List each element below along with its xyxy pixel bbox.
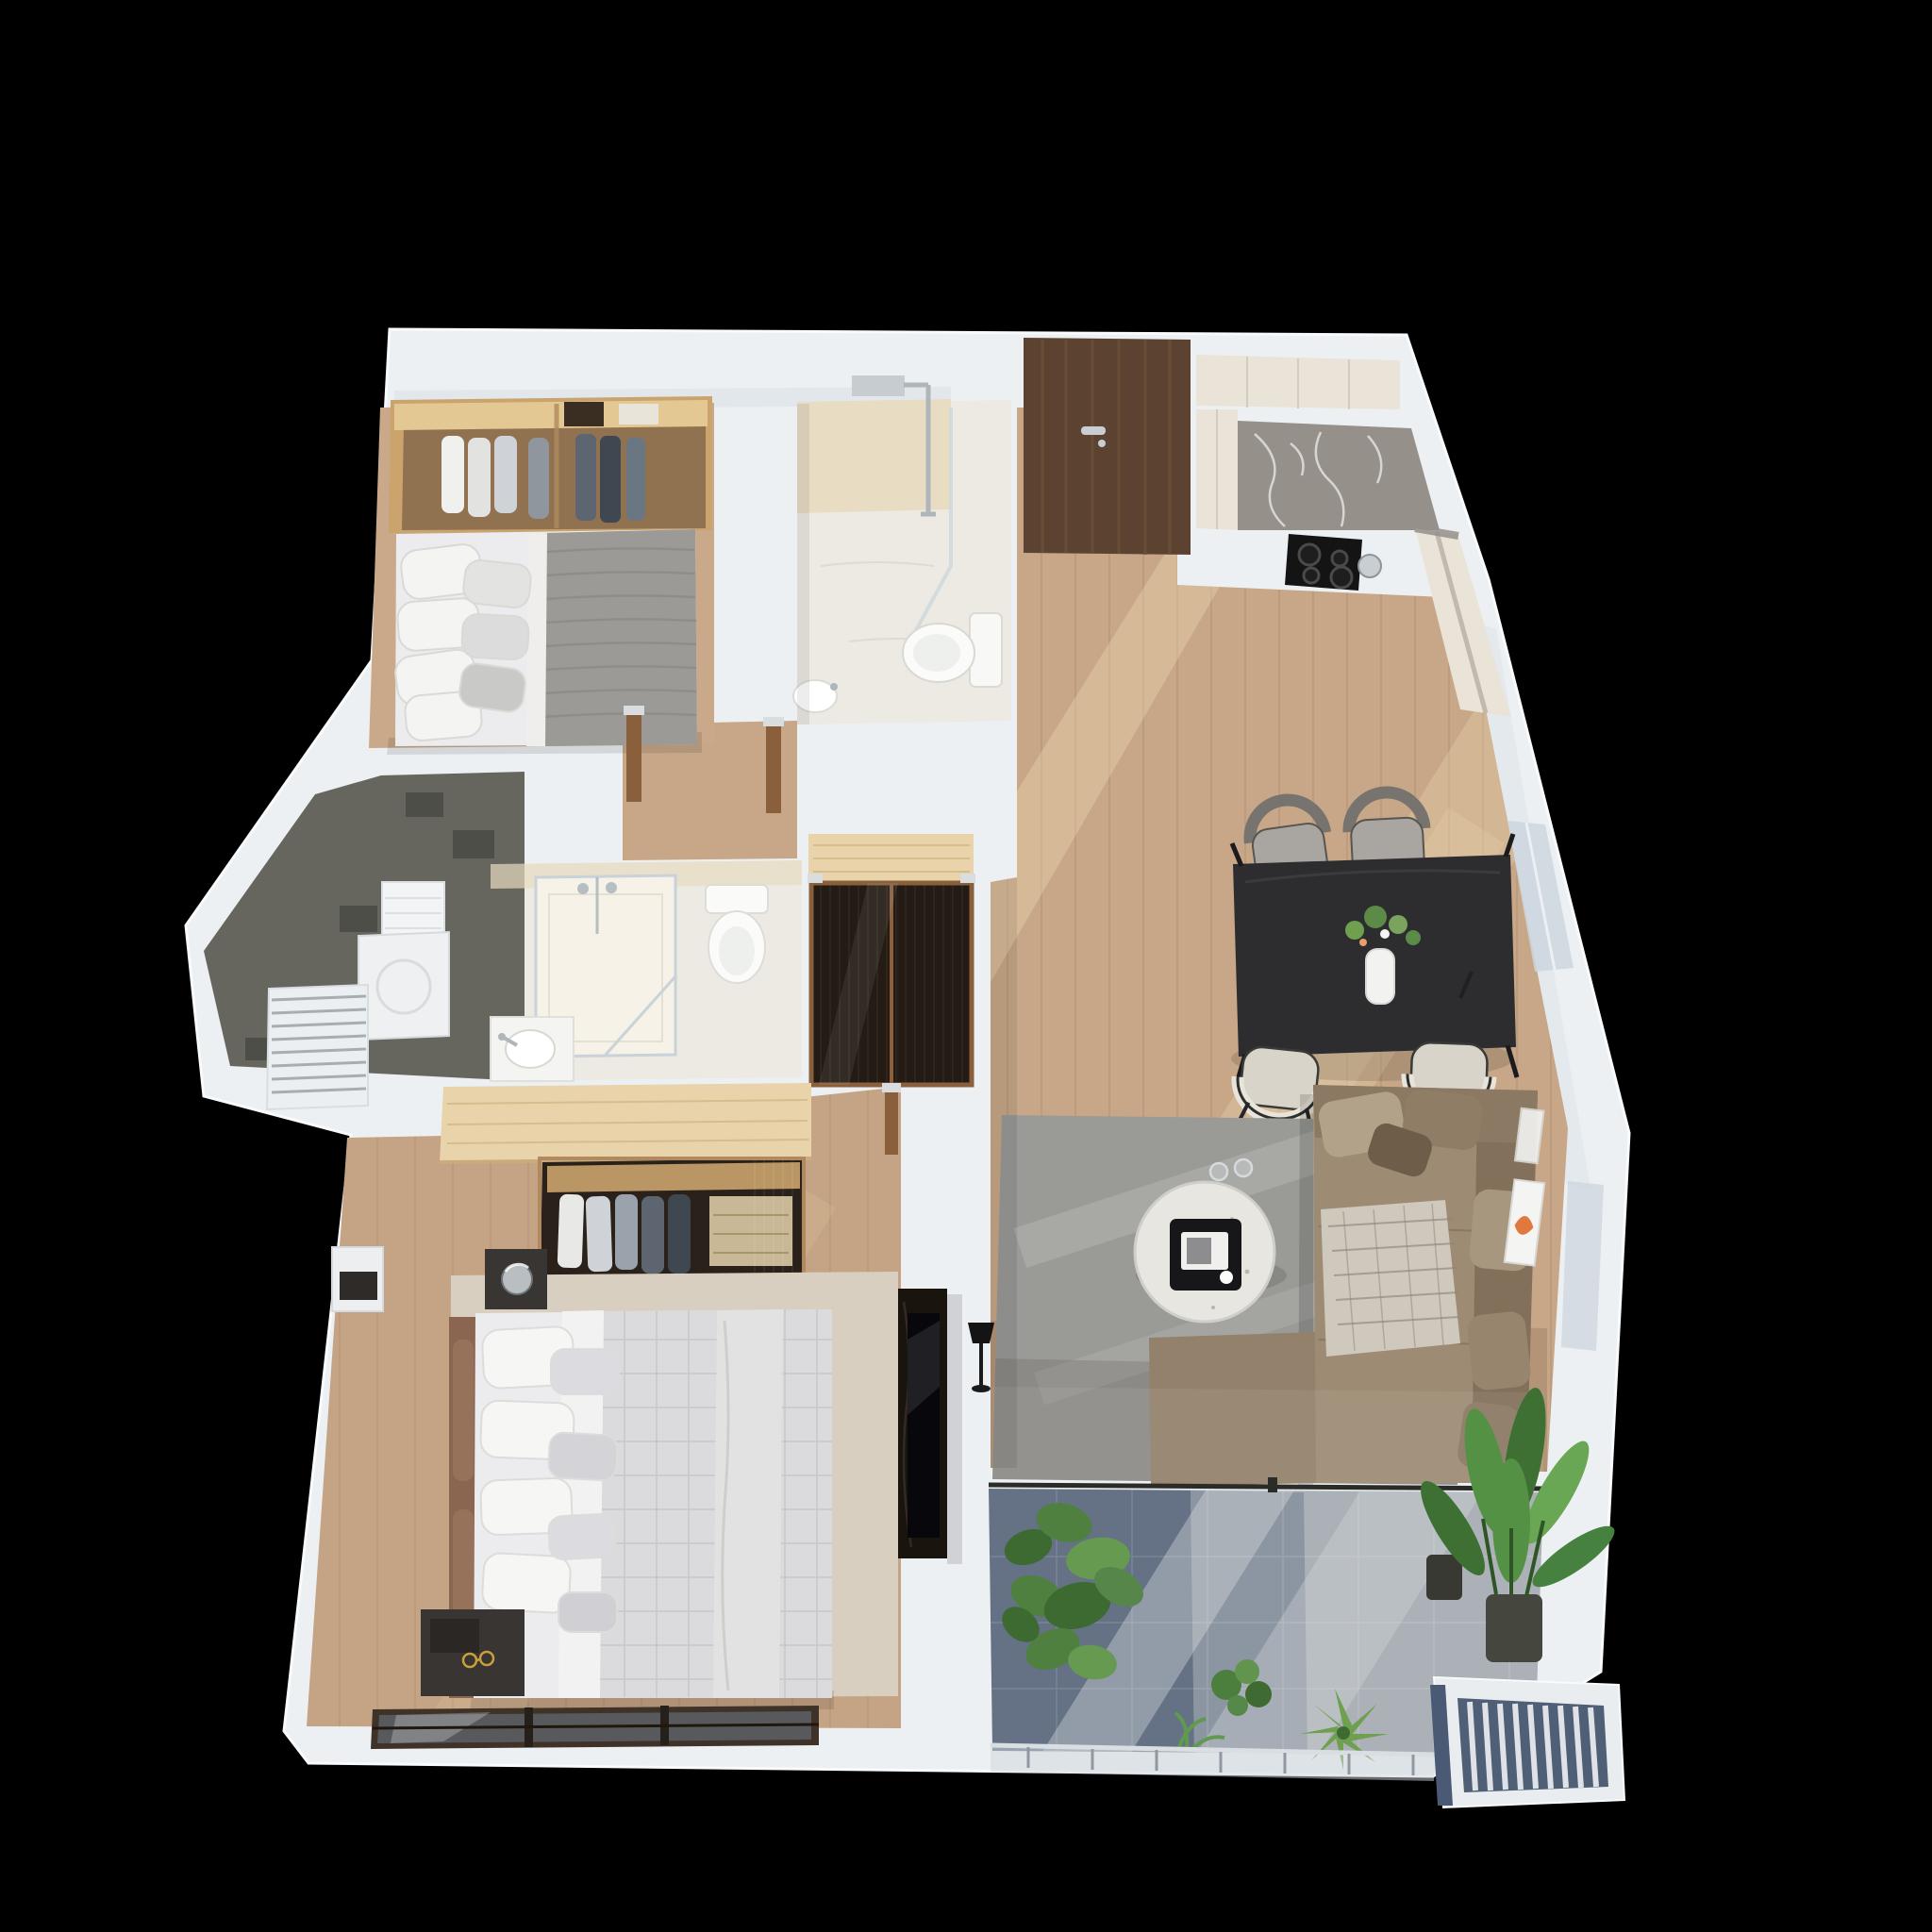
loggia-shelf [382, 882, 444, 939]
washer-cabinet [358, 932, 449, 1040]
floor-plan-stage [0, 0, 1932, 1932]
hanging-clothes [441, 434, 645, 523]
door-handle [1081, 426, 1106, 435]
throw-blanket [1321, 1200, 1460, 1357]
entry-hall [1024, 338, 1191, 555]
bedroom-2 [387, 396, 712, 755]
nightstand-top [485, 1249, 547, 1309]
glass-1 [1210, 1163, 1227, 1180]
wardrobe2-shelf [394, 400, 708, 430]
wardrobe2-folded [619, 404, 658, 425]
tv-media-wall [898, 1289, 962, 1564]
marble-counter [1238, 421, 1440, 530]
balcony-glass-door [989, 1387, 1543, 1492]
vanity-basin [491, 1017, 574, 1081]
floor-plan-render [0, 0, 1932, 1932]
entrance-door [1024, 338, 1191, 555]
sheet-fold [526, 533, 547, 746]
master-balcony-door [371, 1706, 819, 1749]
ac-ledge [1430, 1677, 1624, 1807]
walk-through-closet [808, 834, 975, 1085]
dresser [332, 1247, 383, 1311]
plant-pot [1486, 1594, 1542, 1662]
toilet-2 [706, 885, 768, 983]
glass-2 [1235, 1159, 1252, 1176]
nightstand-bottom [421, 1609, 525, 1696]
kettle [1358, 555, 1381, 577]
pillows [393, 542, 532, 741]
wardrobe2-box [564, 402, 604, 426]
bed-2 [387, 529, 702, 755]
hanging-clothes-master [558, 1194, 691, 1274]
louvered-panel [267, 985, 368, 1109]
